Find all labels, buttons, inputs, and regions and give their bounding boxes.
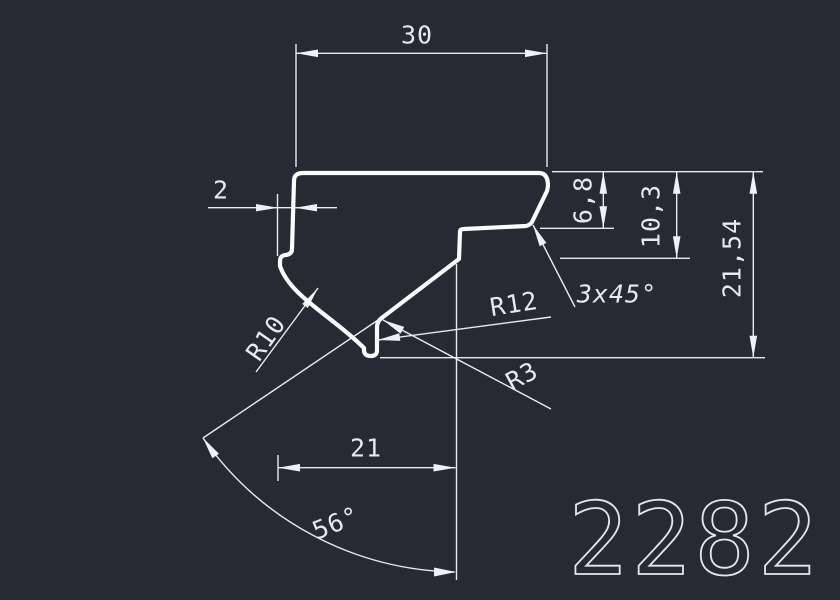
leader-r12 [378,317,551,341]
dim-label-left-offset: 2 [213,176,229,205]
dim-label-total-depth: 21,54 [718,218,747,298]
dim-21-group [278,264,457,580]
profile-outline [280,173,548,356]
dim-label-chamfer-depth: 6,8 [569,176,598,224]
dim-label-top-width: 30 [401,21,433,50]
drawing-number: 2282 [568,490,821,590]
cad-drawing-canvas: 30 2 6,8 10,3 21,54 3x45° R12 R3 R10 21 … [0,0,840,600]
dim-label-step-depth: 10,3 [637,184,666,248]
dim-30-group [296,44,547,167]
leader-chamfer [533,225,575,307]
dim-label-bottom-width: 21 [350,434,382,463]
dim-label-chamfer-note: 3x45° [577,280,657,309]
